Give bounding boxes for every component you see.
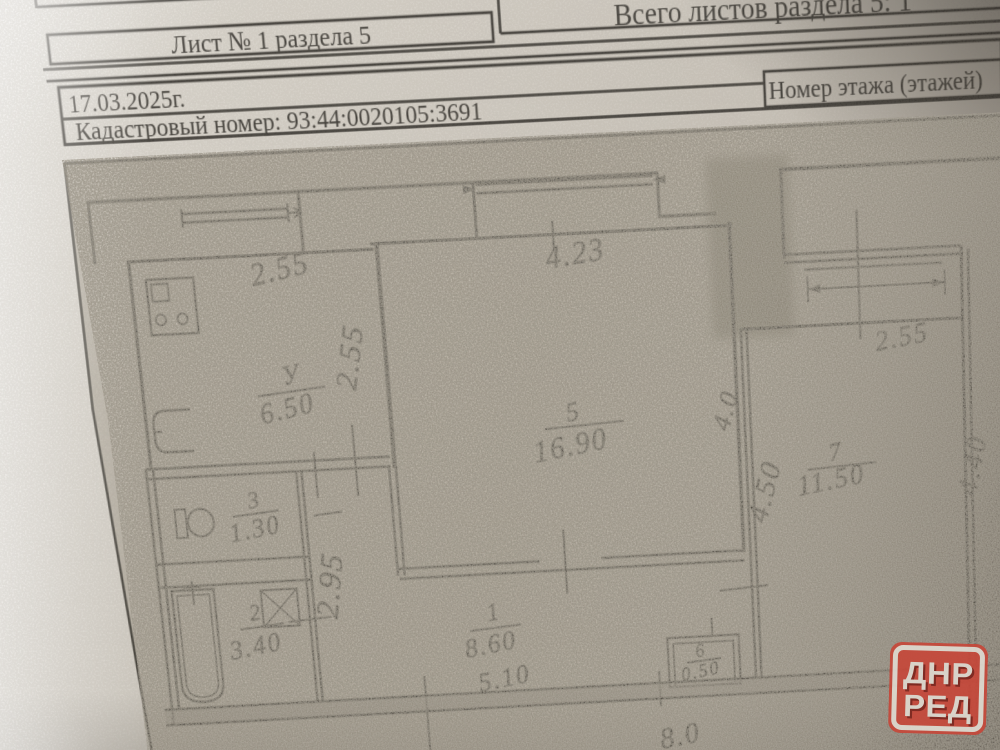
svg-text:РЕД: РЕД [903,688,973,725]
svg-text:ДНР: ДНР [903,655,975,692]
